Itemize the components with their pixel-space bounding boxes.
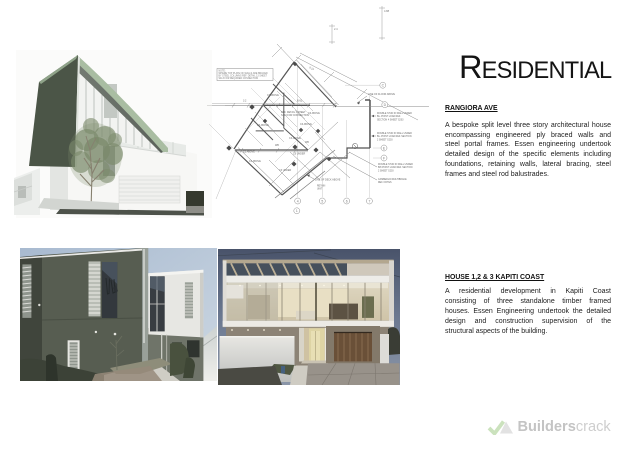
svg-text:B/+ POINT LOAD REF.: B/+ POINT LOAD REF. [377,115,401,118]
svg-text:DOUBLE STUD IN WALL UNDER: DOUBLE STUD IN WALL UNDER [378,163,413,166]
svg-text:C6 UNDER: C6 UNDER [293,153,305,156]
svg-text:SECTION 4 SHEET S203: SECTION 4 SHEET S203 [377,119,404,121]
svg-text:2 SHEET S203: 2 SHEET S203 [378,170,394,172]
svg-text:C3 ABOVE: C3 ABOVE [257,124,269,127]
svg-text:F: F [383,156,385,160]
svg-text:C6 ABOVE: C6 ABOVE [308,112,320,115]
svg-text:2.4: 2.4 [334,27,338,31]
svg-text:1: 1 [296,209,298,213]
svg-text:7: 7 [368,199,370,203]
svg-text:5: 5 [321,199,323,203]
svg-text:LINE OF FLOOR ABOVE: LINE OF FLOOR ABOVE [368,93,395,96]
svg-text:4: 4 [297,199,299,203]
svg-text:C1 ABOVE: C1 ABOVE [243,151,255,154]
svg-text:C3 ABOVE: C3 ABOVE [289,137,301,140]
svg-text:LINE OF DECK ABOVE: LINE OF DECK ABOVE [315,179,341,182]
svg-text:WB: WB [305,141,309,144]
svg-text:B/+ POINT LOAD REF. SECTION: B/+ POINT LOAD REF. SECTION [377,135,412,138]
svg-text:6: 6 [346,199,348,203]
svg-text:C3 ABOVE: C3 ABOVE [267,94,279,97]
svg-text:B/8 POINT LOAD REF. SECTION: B/8 POINT LOAD REF. SECTION [378,166,413,169]
svg-text:CAMBERLIN MULTIBRACE: CAMBERLIN MULTIBRACE [378,178,407,181]
svg-text:WHERE TOP PLATE OF WALLS ARE B: WHERE TOP PLATE OF WALLS ARE BRACED [219,72,268,75]
svg-text:C6 ABOVE: C6 ABOVE [300,123,312,126]
svg-text:S413 FOR CONNECTION: S413 FOR CONNECTION [281,114,309,117]
svg-text:WB: WB [275,144,279,147]
svg-text:UNIT: UNIT [317,189,323,191]
svg-text:4.88: 4.88 [384,9,390,13]
svg-text:8.61: 8.61 [297,99,303,103]
svg-text:S413 FOR REQUIRED CONNECTION: S413 FOR REQUIRED CONNECTION [219,78,259,80]
svg-text:3.2: 3.2 [243,100,247,103]
svg-text:RETAIN: RETAIN [317,185,326,188]
svg-text:DOUBLE STUD IN WALL UNDER: DOUBLE STUD IN WALL UNDER [377,112,412,115]
svg-text:DOUBLE STUD IN WALL UNDER: DOUBLE STUD IN WALL UNDER [377,132,412,135]
svg-text:C3 ABOVE: C3 ABOVE [249,160,261,163]
svg-text:C3 UNDER: C3 UNDER [279,169,291,172]
svg-text:REF. NOTES: REF. NOTES [378,182,392,184]
svg-text:BY STEEL COLUMNS REF. DETAIL 1: BY STEEL COLUMNS REF. DETAIL 13 SHEET [219,75,268,78]
svg-text:2 SHEET S203: 2 SHEET S203 [377,139,393,141]
